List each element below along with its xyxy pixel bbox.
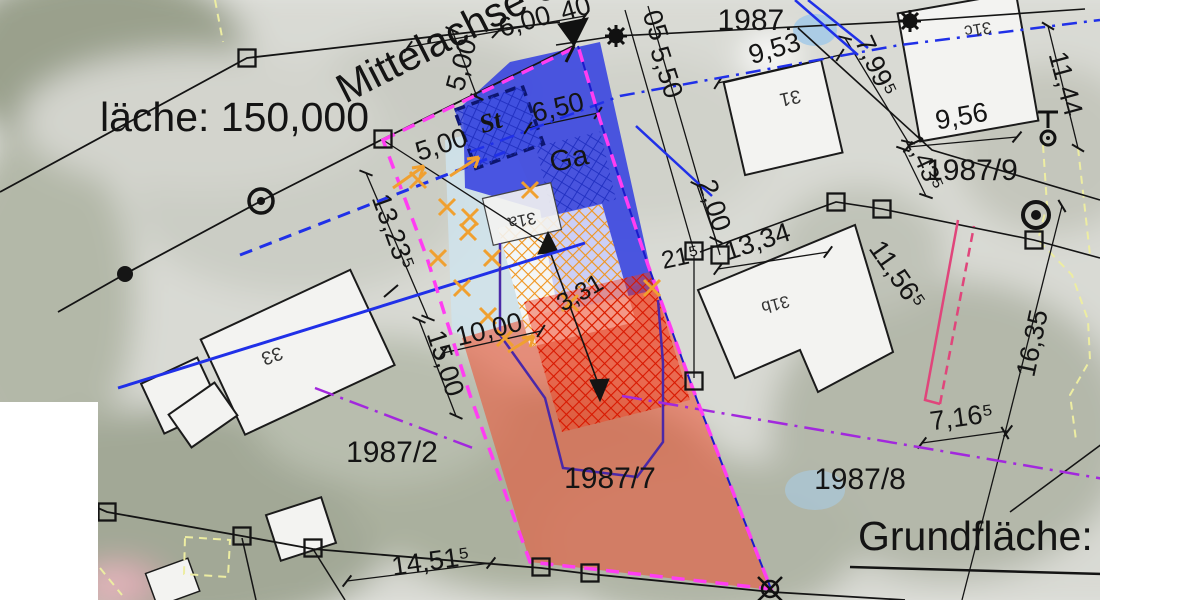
- gear-marker-1: [605, 25, 627, 47]
- area-label-red: läche: 150,000: [100, 94, 369, 140]
- site-plan-canvas: 5,00 6,00 40 05 5,50 9,53 7,99⁵ 9,56 11,…: [0, 0, 1200, 600]
- area-label-black: Grundfläche: 1: [858, 513, 1127, 559]
- boundary-stone-dot: [117, 266, 133, 282]
- sheet-margin-bottom-left: [0, 402, 98, 600]
- gear-marker-2: [899, 10, 921, 32]
- building-label-31: 31: [778, 85, 803, 110]
- cross-circle-marker: [758, 577, 782, 600]
- parcel-label-1987-7: 1987/7: [564, 462, 656, 495]
- parcel-label-1987-9: 1987/9: [926, 154, 1018, 187]
- parcel-label-1987-2: 1987/2: [346, 436, 438, 469]
- parcel-label-1987-8: 1987/8: [814, 463, 906, 496]
- parcel-label-1987: 1987.: [717, 4, 792, 37]
- cadastral-site-plan: 5,00 6,00 40 05 5,50 9,53 7,99⁵ 9,56 11,…: [0, 0, 1200, 600]
- sheet-margin-right: [1100, 0, 1200, 600]
